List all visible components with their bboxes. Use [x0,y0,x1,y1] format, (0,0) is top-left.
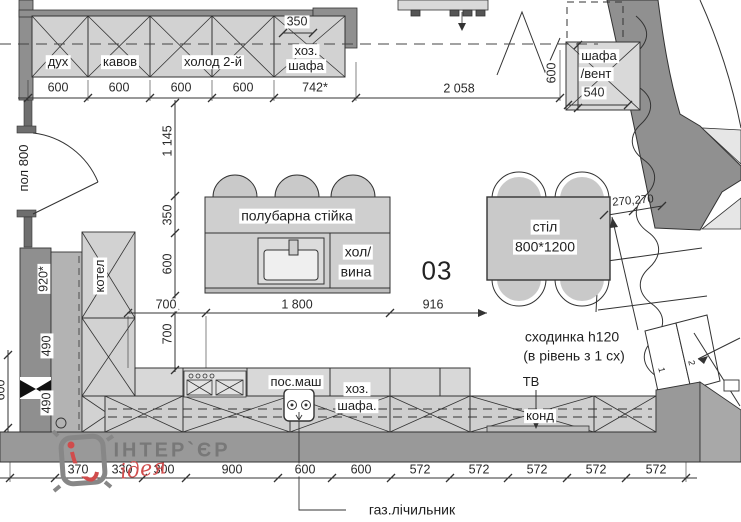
logo-tagline-text: ідея [117,455,170,483]
dim-bottom-0: 370 [66,463,91,476]
label-ac: конд [524,409,556,423]
label-coffee: кавов [101,55,139,69]
label-utility-top-2: шафа [286,59,326,73]
dim-top-2: 600 [169,81,194,94]
dim-island-2: 916 [421,298,446,311]
dim-left-wall-width: 920* [37,264,50,294]
cooktop-icon [184,371,246,397]
label-door-opening: пол 800 [17,143,31,194]
label-utility-bottom-2: шафа. [335,399,378,413]
dim-vent-height: 600 [545,61,558,86]
dim-island-0: 700 [154,298,179,311]
dim-bottom-4: 600 [293,463,318,476]
dim-top-inset: 350 [285,15,310,28]
dim-left-chain-2: 600 [161,252,174,277]
label-tv: ТВ [521,375,542,389]
label-dishwasher: пос.маш [269,375,324,389]
dim-vent-width: 540 [582,86,607,99]
sink-icon [258,238,324,284]
label-table-1: стіл [531,220,560,235]
label-utility-top-1: хоз. [292,44,319,58]
door-leaf [33,182,98,214]
dim-bottom-9: 572 [584,463,609,476]
label-vent-1: шафа [579,49,619,63]
dim-left-chain-3: 700 [161,322,174,347]
dim-top-3: 600 [231,81,256,94]
dim-top-1: 600 [107,81,132,94]
dim-top-5: 2 058 [441,82,476,95]
label-step-note-2: (в рівень з 1 сх) [521,349,627,364]
label-oven: дух [46,55,71,69]
bar-stools [213,175,375,197]
dim-left-wall-seg-1: 490 [40,391,53,416]
room-number: 03 [420,257,455,284]
dim-left-edge: 600 [0,378,8,403]
stair-step-number-1: 1 [655,365,666,376]
dim-bottom-3: 900 [220,463,245,476]
dim-top-0: 600 [46,81,71,94]
dim-bottom-5: 600 [349,463,374,476]
label-boiler: котел [93,258,107,295]
label-wine-1: хол/ [343,245,373,260]
stair-step-number-2: 2 [685,358,696,369]
dim-left-chain-0: 1 145 [161,123,174,158]
door-arc [33,133,98,182]
top-fixture [398,0,488,31]
kitchen-floor-plan: дух кавов холод 2-й хоз. шафа 350 600 60… [0,0,741,522]
dim-island-1: 1 800 [279,298,314,311]
label-bar-counter: полубарна стійка [239,209,355,224]
label-step-note-1: сходинка h120 [523,330,621,345]
label-gas-meter: газ.лічильник [367,503,457,518]
dim-left-wall-seg-0: 490 [40,334,53,359]
gas-meter-icon [284,389,314,421]
dim-bottom-6: 572 [408,463,433,476]
label-utility-bottom-1: хоз. [343,382,370,396]
dim-bottom-10: 572 [644,463,669,476]
bottom-counter [105,368,656,440]
stair-direction-arrow [612,217,638,330]
label-vent-2: /вент [579,67,614,81]
label-fridge: холод 2-й [182,55,244,69]
dim-bottom-7: 572 [467,463,492,476]
label-wine-2: вина [339,265,374,280]
dim-top-4: 742* [300,81,330,94]
label-table-2: 800*1200 [513,240,577,255]
dim-left-chain-1: 350 [161,203,174,228]
dim-bottom-8: 572 [525,463,550,476]
